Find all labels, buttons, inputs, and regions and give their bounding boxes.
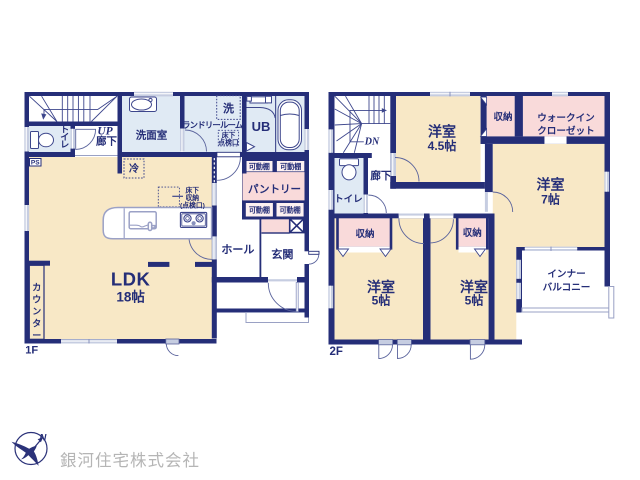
svg-text:収納: 収納 [186,193,200,202]
svg-text:パントリー: パントリー [248,183,301,195]
svg-text:5帖: 5帖 [465,293,484,308]
svg-text:PS: PS [31,160,40,167]
svg-text:7帖: 7帖 [541,192,560,207]
svg-text:洋室: 洋室 [428,124,456,140]
svg-text:バルコニー: バルコニー [543,281,591,293]
svg-text:床下: 床下 [222,130,236,139]
svg-text:4.5帖: 4.5帖 [428,138,457,153]
svg-text:可動棚: 可動棚 [249,162,270,171]
svg-text:洗: 洗 [223,101,234,115]
svg-text:2F: 2F [330,346,343,358]
svg-text:玄関: 玄関 [271,247,293,261]
svg-text:可動棚: 可動棚 [249,205,270,214]
svg-text:カウンター: カウンター [32,283,41,341]
svg-text:可動棚: 可動棚 [280,162,301,171]
svg-text:UB: UB [252,119,271,134]
svg-text:LDK: LDK [111,269,151,290]
svg-text:トイレ: トイレ [334,194,363,205]
svg-text:DN: DN [364,137,380,148]
svg-text:収納: 収納 [355,228,374,240]
svg-text:(点検口): (点検口) [180,200,205,209]
svg-text:18帖: 18帖 [116,289,145,305]
svg-text:インナー: インナー [547,269,585,280]
svg-text:ホール: ホール [221,243,254,256]
svg-text:ウォークイン: ウォークイン [537,113,595,124]
svg-text:クローゼット: クローゼット [537,125,595,137]
svg-text:収納: 収納 [493,111,512,123]
svg-text:銀河住宅株式会社: 銀河住宅株式会社 [60,451,200,470]
svg-text:洗面室: 洗面室 [136,128,168,141]
svg-text:N: N [40,433,48,444]
svg-text:床下: 床下 [186,186,200,195]
svg-text:廊下: 廊下 [370,169,391,182]
svg-text:廊下: 廊下 [96,135,117,148]
svg-text:5帖: 5帖 [372,293,391,308]
svg-text:冷: 冷 [129,162,139,175]
svg-text:収納: 収納 [463,227,482,239]
svg-text:洋室: 洋室 [537,177,565,193]
svg-text:1F: 1F [25,345,38,357]
svg-text:点検口: 点検口 [218,138,239,147]
svg-text:可動棚: 可動棚 [280,205,301,214]
svg-text:トイレ: トイレ [60,125,69,150]
svg-text:ランドリールーム: ランドリールーム [182,120,244,130]
